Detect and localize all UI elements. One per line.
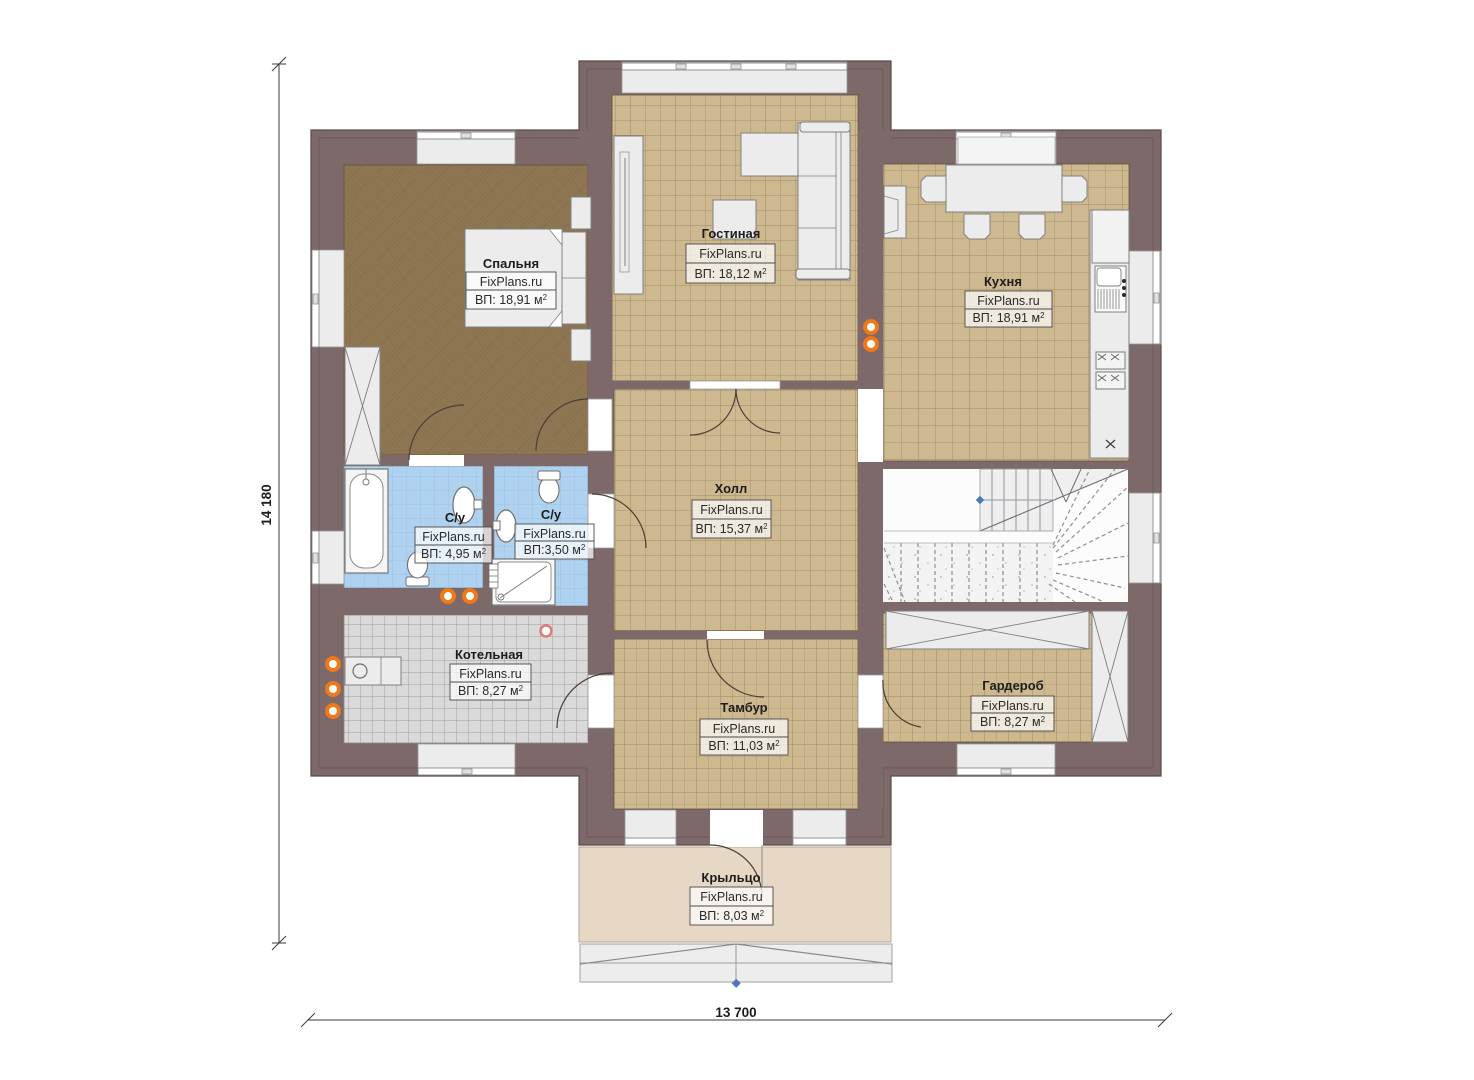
- svg-text:Тамбур: Тамбур: [720, 700, 767, 715]
- svg-text:ВП: 11,03 м2: ВП: 11,03 м2: [708, 739, 780, 753]
- svg-text:Крыльцо: Крыльцо: [701, 870, 760, 885]
- svg-text:ВП: 8,27 м2: ВП: 8,27 м2: [980, 715, 1046, 729]
- svg-text:Котельная: Котельная: [455, 647, 523, 662]
- svg-text:С/у: С/у: [541, 507, 562, 522]
- svg-text:FixPlans.ru: FixPlans.ru: [713, 722, 776, 736]
- svg-text:ВП: 18,12 м2: ВП: 18,12 м2: [694, 267, 767, 281]
- svg-text:FixPlans.ru: FixPlans.ru: [699, 247, 762, 261]
- svg-text:FixPlans.ru: FixPlans.ru: [700, 890, 763, 904]
- svg-text:FixPlans.ru: FixPlans.ru: [977, 294, 1040, 308]
- svg-text:ВП: 8,27 м2: ВП: 8,27 м2: [458, 684, 524, 698]
- svg-text:FixPlans.ru: FixPlans.ru: [700, 503, 763, 517]
- svg-text:ВП:3,50 м2: ВП:3,50 м2: [524, 543, 586, 557]
- svg-text:ВП: 18,91 м2: ВП: 18,91 м2: [972, 311, 1045, 325]
- svg-text:ВП: 15,37 м2: ВП: 15,37 м2: [695, 522, 768, 536]
- svg-text:13 700: 13 700: [715, 1005, 756, 1020]
- svg-text:ВП: 18,91 м2: ВП: 18,91 м2: [475, 293, 548, 307]
- svg-text:Гостиная: Гостиная: [702, 226, 761, 241]
- svg-text:Холл: Холл: [715, 481, 748, 496]
- svg-text:FixPlans.ru: FixPlans.ru: [480, 275, 543, 289]
- svg-text:FixPlans.ru: FixPlans.ru: [422, 530, 485, 544]
- svg-text:Кухня: Кухня: [984, 274, 1022, 289]
- svg-text:14 180: 14 180: [259, 484, 274, 525]
- svg-text:Гардероб: Гардероб: [982, 678, 1043, 693]
- svg-text:FixPlans.ru: FixPlans.ru: [523, 527, 586, 541]
- svg-text:ВП: 4,95 м2: ВП: 4,95 м2: [421, 547, 487, 561]
- svg-text:С/у: С/у: [445, 510, 466, 525]
- svg-text:ВП: 8,03 м2: ВП: 8,03 м2: [699, 909, 765, 923]
- svg-text:Спальня: Спальня: [483, 256, 539, 271]
- svg-text:FixPlans.ru: FixPlans.ru: [459, 667, 522, 681]
- svg-text:FixPlans.ru: FixPlans.ru: [981, 699, 1044, 713]
